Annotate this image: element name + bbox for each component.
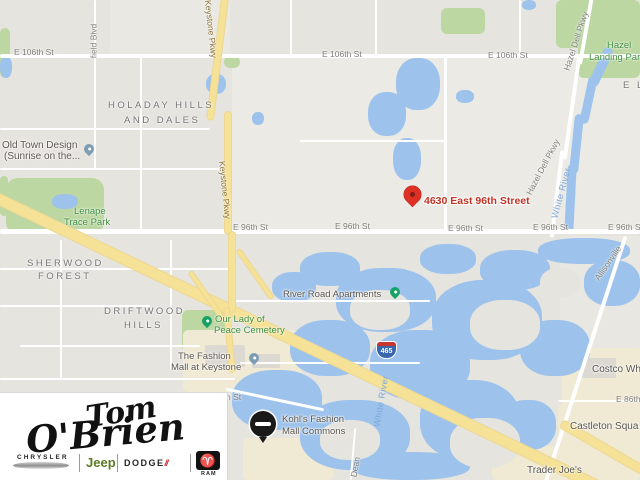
street-label-e106th: E 106th St [14,47,54,57]
logo-divider [117,454,118,472]
road [300,140,445,142]
pond [0,56,12,78]
street-label-e96th: E 96th St [233,222,268,232]
road [290,0,292,56]
neighborhood-holaday: AND DALES [124,115,200,126]
street-label-h-st: h St [226,392,241,402]
map-screenshot: E 106th St E 106th St E 106th St E 96th … [0,0,640,480]
poi-fashion-mall[interactable]: Mall at Keystone [171,362,241,373]
neighborhood-sherwood: FOREST [38,271,92,282]
poi-kohls-fashion-mall-commons[interactable]: Kohl's Fashion [282,414,344,425]
poi-old-town-design[interactable]: Old Town Design [2,140,77,151]
road [140,56,142,232]
poi-trader-joes[interactable]: Trader Joe's [527,465,582,476]
dodge-text: DODGE [124,458,165,468]
neighborhood-driftwood: HILLS [124,320,163,331]
pond [252,112,264,125]
poi-our-lady-of-peace[interactable]: Our Lady of [215,314,265,325]
ram-wordmark: RAM [201,471,217,477]
i465-number: 465 [381,348,393,355]
street-label-e96th: E 96th St [335,221,370,231]
neighborhood-driftwood: DRIFTWOOD [104,306,185,317]
poi-kohls-fashion-mall-commons[interactable]: Mall Commons [282,426,345,437]
island [540,268,580,298]
road [230,300,430,302]
logo-divider [79,454,80,472]
road [0,128,210,130]
ram-badge-icon: ♈ [196,451,220,470]
dealer-logo-panel: Tom O'Brien CHRYSLER Jeep DODGE// ♈ RAM [0,392,228,480]
poi-fashion-mall[interactable]: The Fashion [178,351,231,362]
poi-our-lady-of-peace[interactable]: Peace Cemetery [214,325,285,336]
dodge-wordmark: DODGE// [124,458,168,468]
lake [393,138,421,180]
street-label-e96th: E 96th St [608,222,640,232]
wetland [420,244,476,274]
poi-hazel-landing-park[interactable]: Hazel [607,40,631,51]
poi-costco[interactable]: Costco Wh [592,364,640,375]
pond [456,90,474,103]
poi-castleton-square[interactable]: Castleton Squa [570,421,638,432]
street-label-e106th: E 106th St [322,49,362,59]
pond [522,0,536,10]
poi-hazel-landing-park[interactable]: Landing Par.. [589,52,640,63]
road [170,240,172,370]
poi-lenape-trace-park[interactable]: Trace Park [64,217,110,228]
road [20,345,200,347]
street-label-e96th: E 96th St [533,222,568,232]
street-label-e106th: E 106th St [488,50,528,60]
poi-lenape-trace-park[interactable]: Lenape [74,206,106,217]
highway-keystone [229,232,235,312]
road [519,0,521,56]
lake [368,92,406,136]
chrysler-wordmark: CHRYSLER [17,454,69,461]
road [375,0,377,56]
destination-address-label[interactable]: 4630 East 96th Street [424,195,530,207]
logo-divider [190,454,191,472]
street-label-field-blvd: field Blvd [88,24,98,59]
kohls-logo-pin-icon[interactable] [250,411,276,437]
neighborhood-partial: E L [623,80,640,91]
poi-river-road-apartments[interactable]: River Road Apartments [283,289,381,300]
road [0,378,235,380]
dodge-slashes-icon: // [165,458,168,468]
island [470,300,540,350]
street-label-e96th: E 96th St [448,223,483,233]
road [0,168,225,170]
street-label-e86th: E 86th [616,394,640,404]
jeep-wordmark: Jeep [86,455,116,470]
highway-ramp [237,249,274,299]
neighborhood-holaday: HOLADAY HILLS [108,100,214,111]
park-area [441,8,485,34]
neighborhood-sherwood: SHERWOOD [27,258,104,269]
poi-old-town-design[interactable]: (Sunrise on the... [4,151,80,162]
chrysler-wings-icon [13,462,69,469]
